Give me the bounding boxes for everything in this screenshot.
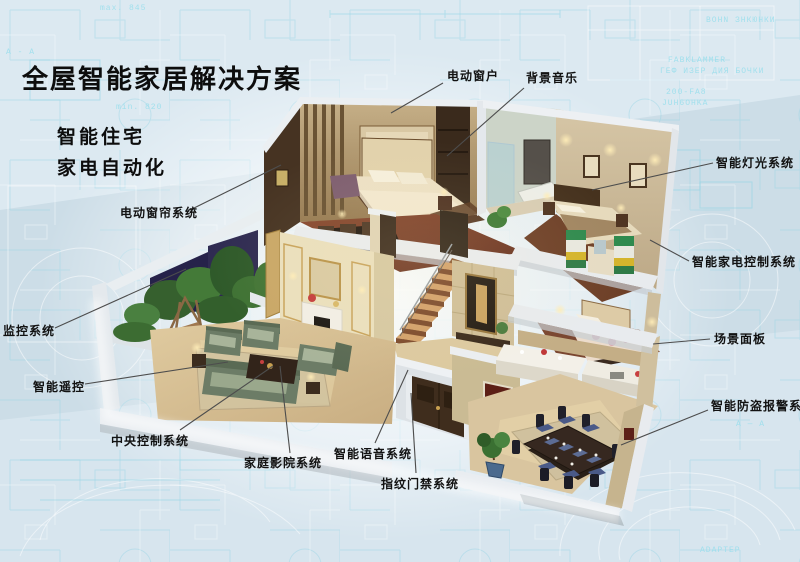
- callout-label: 智能家电控制系统: [692, 253, 796, 270]
- leader-line: [180, 366, 273, 430]
- blueprint-text: BOHN ЗНКЮНКИ: [706, 16, 776, 25]
- callout-label: 电动窗户: [447, 67, 499, 84]
- leader-line: [447, 88, 524, 156]
- blueprint-text: 200-FA8: [666, 88, 707, 97]
- subtitle-appliance-automation: 家电自动化: [57, 153, 167, 180]
- leader-line: [280, 366, 290, 453]
- leader-line: [621, 410, 708, 445]
- page-title: 全屋智能家居解决方案: [22, 59, 302, 96]
- leader-line: [190, 165, 281, 210]
- blueprint-text: FABKLAMMER: [668, 56, 726, 65]
- blueprint-text: A - A: [6, 48, 35, 57]
- blueprint-text: JUH6OHKA: [662, 99, 708, 108]
- callout-label: 智能防盗报警系统: [711, 397, 800, 414]
- leader-line: [55, 269, 186, 328]
- callout-label: 电动窗帘系统: [120, 204, 198, 221]
- callout-label: 中央控制系统: [111, 432, 189, 449]
- blueprint-text: min. 820: [116, 103, 162, 112]
- blueprint-text: max. 845: [100, 4, 146, 13]
- blueprint-text: ГЕФ ИЗЕР ДИЯ БОЧКИ: [660, 67, 764, 76]
- leader-line: [375, 370, 408, 443]
- leader-line: [85, 362, 228, 384]
- callout-label: 智能灯光系统: [716, 154, 794, 171]
- callout-label: 监控系统: [3, 322, 55, 339]
- callout-label: 场景面板: [714, 330, 766, 347]
- callout-label: 智能语音系统: [334, 445, 412, 462]
- blueprint-text: ADAPTEP: [700, 546, 741, 555]
- callout-label: 智能遥控: [33, 378, 85, 395]
- leader-line: [650, 240, 689, 261]
- leader-line: [592, 163, 713, 190]
- callout-label: 指纹门禁系统: [381, 475, 459, 492]
- leader-line: [391, 83, 443, 113]
- callout-label: 家庭影院系统: [244, 454, 322, 471]
- leader-line: [653, 339, 710, 344]
- subtitle-smart-residence: 智能住宅: [57, 122, 145, 149]
- callout-label: 背景音乐: [526, 69, 578, 86]
- smart-home-infographic: 全屋智能家居解决方案 智能住宅 家电自动化 max. 845A - Amin. …: [0, 0, 800, 562]
- blueprint-text: A — A: [736, 420, 765, 429]
